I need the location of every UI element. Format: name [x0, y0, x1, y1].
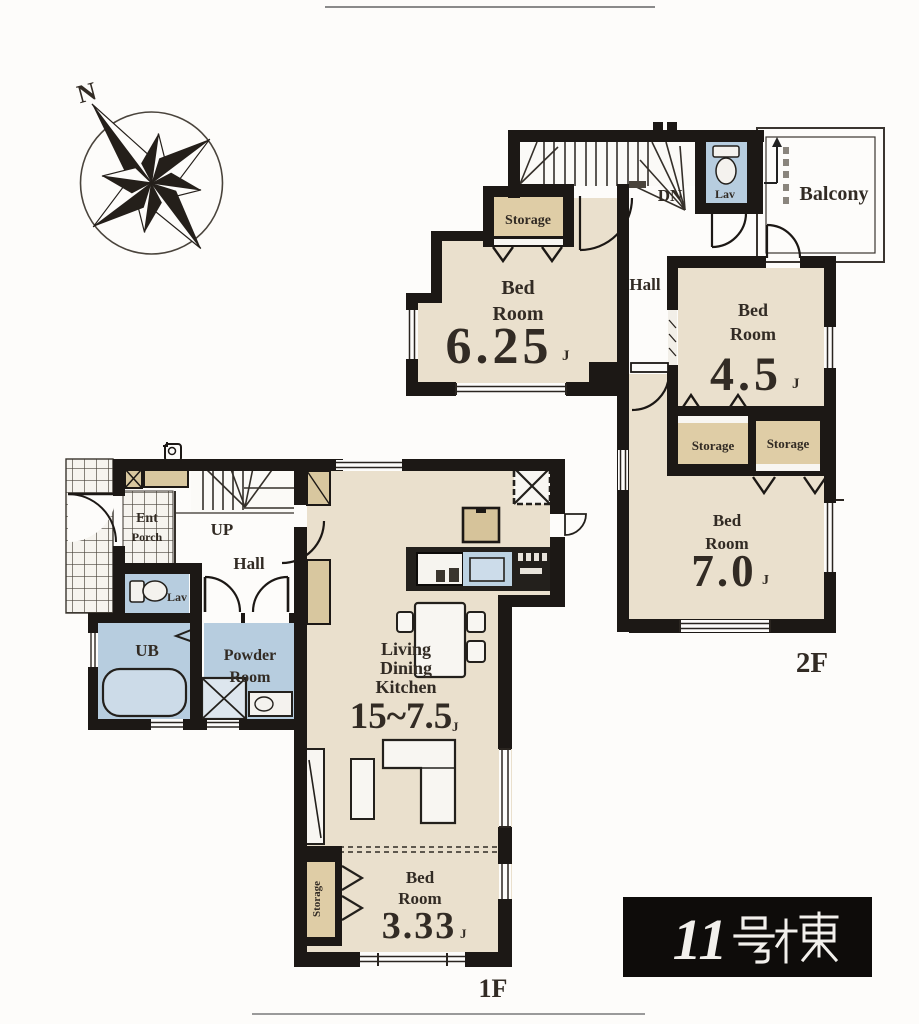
svg-text:Lav: Lav	[715, 187, 735, 201]
svg-text:Bed: Bed	[501, 277, 534, 299]
svg-text:Bed: Bed	[738, 300, 768, 320]
svg-text:3.33: 3.33	[382, 905, 457, 947]
svg-text:Ent: Ent	[136, 511, 158, 526]
svg-text:Bed: Bed	[713, 511, 742, 530]
svg-text:Powder: Powder	[224, 647, 276, 664]
svg-text:6.25: 6.25	[446, 318, 553, 375]
svg-text:Hall: Hall	[233, 554, 264, 573]
svg-text:Dining: Dining	[380, 658, 432, 678]
svg-text:15~7.5: 15~7.5	[350, 696, 453, 737]
svg-text:UB: UB	[135, 641, 159, 660]
svg-text:Room: Room	[730, 324, 776, 344]
svg-text:Bed: Bed	[406, 868, 435, 887]
svg-text:J: J	[792, 376, 800, 392]
svg-text:7.0: 7.0	[691, 546, 756, 596]
svg-text:Storage: Storage	[505, 213, 551, 228]
svg-text:Storage: Storage	[692, 438, 735, 453]
svg-text:Hall: Hall	[629, 275, 660, 294]
svg-text:Kitchen: Kitchen	[376, 677, 437, 697]
svg-text:Balcony: Balcony	[800, 183, 869, 205]
svg-text:DN: DN	[658, 186, 683, 205]
svg-text:1F: 1F	[479, 974, 508, 1003]
svg-text:Lav: Lav	[167, 590, 187, 604]
svg-text:Living: Living	[381, 639, 431, 659]
svg-text:J: J	[562, 348, 570, 364]
svg-text:2F: 2F	[796, 647, 828, 679]
svg-text:N: N	[74, 76, 100, 109]
svg-text:J: J	[452, 719, 459, 734]
svg-text:11: 11	[673, 907, 728, 972]
svg-text:J: J	[460, 926, 467, 941]
svg-text:Porch: Porch	[132, 530, 163, 544]
svg-text:4.5: 4.5	[710, 348, 782, 401]
svg-text:UP: UP	[211, 520, 234, 539]
svg-text:Storage: Storage	[767, 436, 810, 451]
svg-text:Room: Room	[230, 669, 272, 686]
svg-text:Storage: Storage	[311, 881, 323, 917]
svg-text:J: J	[762, 573, 769, 588]
